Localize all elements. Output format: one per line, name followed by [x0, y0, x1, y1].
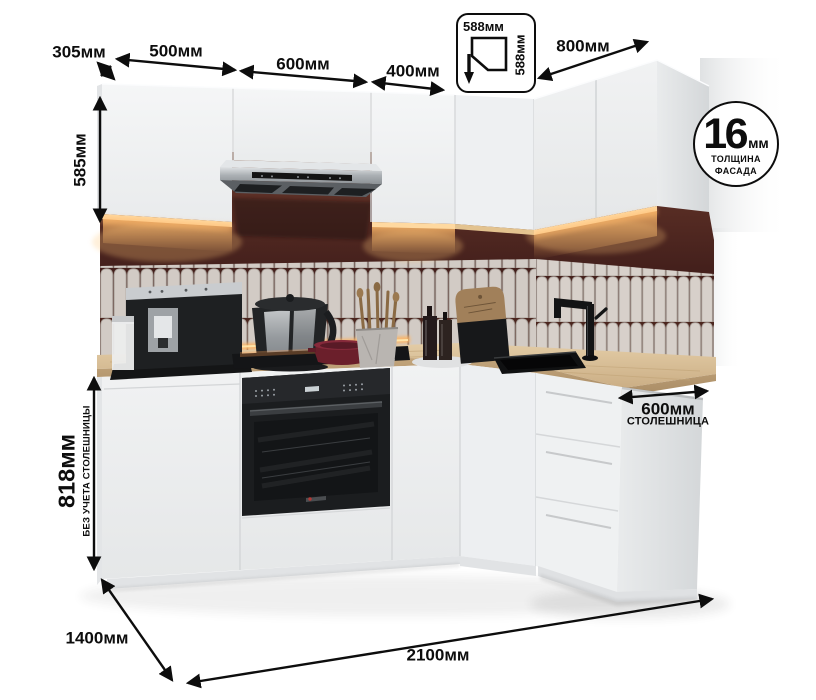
arrow-2100mm — [188, 599, 712, 683]
dim-1400-label: 1400мм — [66, 630, 129, 647]
down-arrow-icon — [464, 72, 474, 84]
arrow-305mm — [98, 63, 114, 79]
dimension-arrows — [0, 0, 816, 700]
dim-585-label: 585мм — [72, 133, 89, 187]
arrow-400mm — [373, 82, 443, 90]
dim-600-counter-note: СТОЛЕШНИЦА — [627, 417, 709, 428]
dim-818-label: 818мм — [55, 434, 79, 508]
dim-818-note: БЕЗ УЧЕТА СТОЛЕШНИЦЫ — [82, 405, 92, 536]
dim-400-label: 400мм — [386, 63, 440, 80]
dim-305-label: 305мм — [52, 44, 106, 61]
corner-cabinet-depth-label: 588мм — [513, 35, 528, 76]
dim-600-label: 600мм — [276, 56, 330, 73]
dim-800-label: 800мм — [556, 38, 610, 55]
badge-value: 16 — [703, 118, 746, 152]
corner-cabinet-shape — [461, 34, 511, 88]
dim-500-label: 500мм — [149, 43, 203, 60]
badge-unit: мм — [748, 138, 769, 149]
arrow-600mm-counter — [620, 391, 707, 398]
badge-line2: ФАСАДА — [715, 166, 757, 176]
dim-2100-label: 2100мм — [407, 647, 470, 664]
arrow-500mm — [117, 59, 235, 70]
facade-thickness-badge: 16 мм ТОЛЩИНА ФАСАДА — [693, 101, 779, 187]
kitchen-dimensions-diagram: 305мм 500мм 600мм 400мм 800мм 585мм 818м… — [0, 0, 816, 700]
corner-cabinet-width-label: 588мм — [463, 19, 504, 34]
badge-line1: ТОЛЩИНА — [711, 154, 761, 164]
corner-cabinet-icon: 588мм 588мм — [456, 13, 536, 93]
